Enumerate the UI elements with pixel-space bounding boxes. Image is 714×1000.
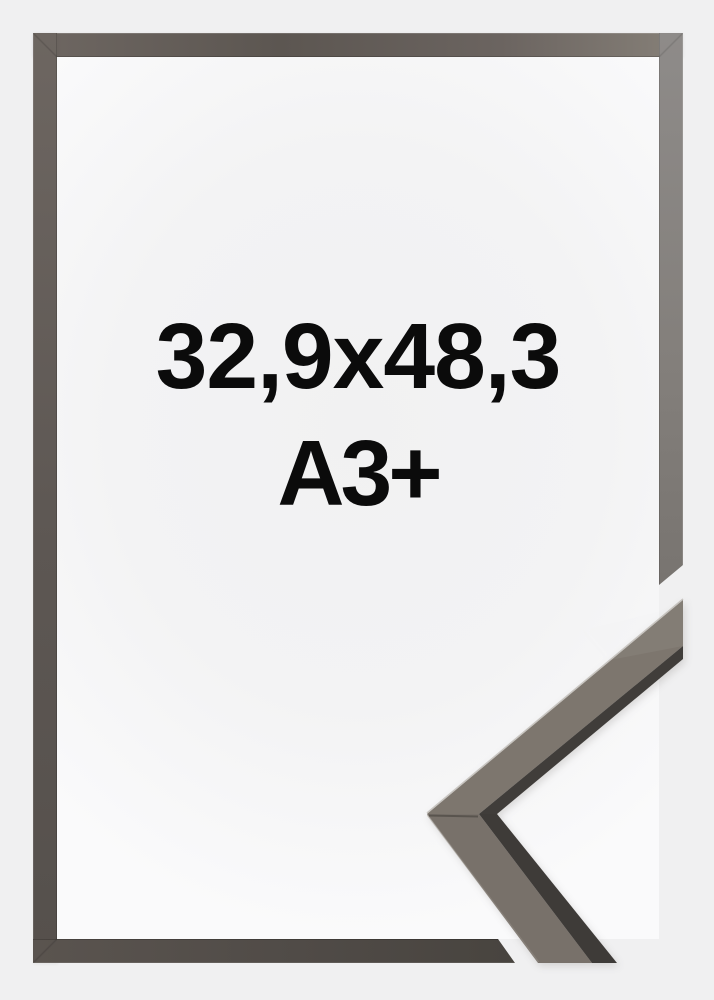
frame-top-bar xyxy=(33,33,683,57)
frame-bottom-bar xyxy=(33,939,515,963)
product-image-canvas: 32,9x48,3 A3+ xyxy=(0,0,714,1000)
frame-left-bar xyxy=(33,33,57,963)
size-format-text: A3+ xyxy=(57,427,659,520)
frame-right-bar xyxy=(659,33,683,585)
size-dimensions-text: 32,9x48,3 xyxy=(57,310,659,403)
